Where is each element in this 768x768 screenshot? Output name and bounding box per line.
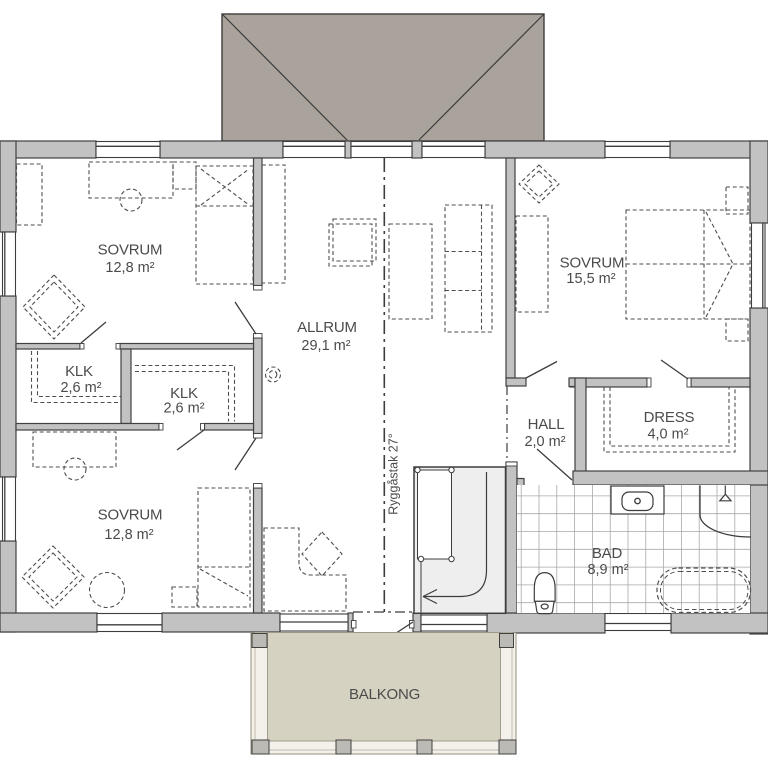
svg-text:HALL: HALL (528, 416, 565, 433)
svg-text:Ryggåstak 27°: Ryggåstak 27° (387, 433, 401, 514)
svg-text:29,1 m²: 29,1 m² (301, 338, 350, 354)
svg-text:2,6 m²: 2,6 m² (163, 401, 204, 417)
svg-text:DRESS: DRESS (644, 409, 695, 426)
svg-text:KLK: KLK (65, 363, 93, 380)
svg-text:SOVRUM: SOVRUM (98, 242, 163, 259)
svg-text:BALKONG: BALKONG (349, 686, 420, 703)
svg-text:12,8 m²: 12,8 m² (105, 260, 154, 276)
svg-text:2,6 m²: 2,6 m² (60, 380, 101, 396)
svg-text:12,8 m²: 12,8 m² (104, 527, 153, 543)
svg-text:SOVRUM: SOVRUM (560, 255, 625, 272)
svg-text:KLK: KLK (170, 385, 198, 402)
svg-text:BAD: BAD (592, 545, 623, 562)
svg-text:15,5 m²: 15,5 m² (566, 271, 615, 287)
svg-text:4,0 m²: 4,0 m² (647, 427, 688, 443)
svg-text:8,9 m²: 8,9 m² (587, 562, 628, 578)
svg-text:2,0 m²: 2,0 m² (524, 434, 565, 450)
svg-text:SOVRUM: SOVRUM (98, 507, 163, 524)
svg-text:ALLRUM: ALLRUM (297, 319, 357, 336)
